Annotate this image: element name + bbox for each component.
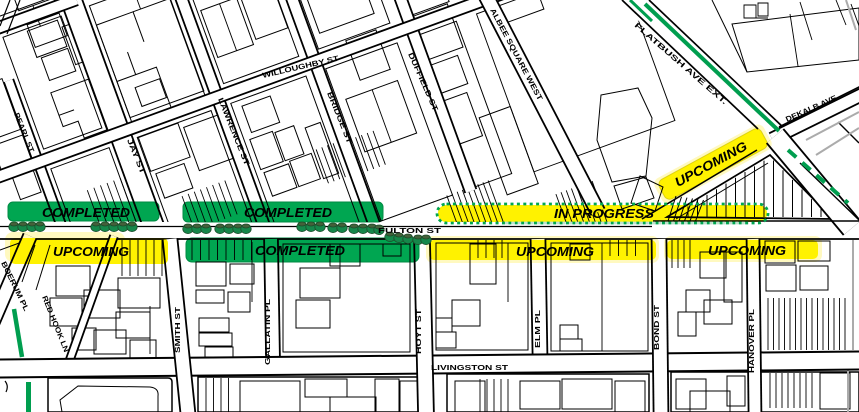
svg-text:COMPLETED: COMPLETED	[42, 205, 131, 220]
svg-text:BOND ST: BOND ST	[652, 304, 661, 350]
svg-text:UPCOMING: UPCOMING	[53, 244, 129, 259]
svg-text:COMPLETED: COMPLETED	[244, 205, 333, 220]
svg-text:ELM PL: ELM PL	[533, 309, 542, 348]
svg-text:HANOVER PL: HANOVER PL	[747, 308, 756, 373]
svg-text:FULTON ST: FULTON ST	[378, 226, 442, 235]
svg-text:UPCOMING: UPCOMING	[708, 243, 786, 258]
svg-text:LIVINGSTON ST: LIVINGSTON ST	[431, 363, 509, 372]
svg-text:UPCOMING: UPCOMING	[516, 244, 594, 259]
svg-text:COMPLETED: COMPLETED	[255, 243, 346, 258]
svg-text:SMITH ST: SMITH ST	[173, 306, 182, 353]
svg-text:HOYT ST: HOYT ST	[414, 308, 423, 354]
svg-text:IN PROGRESS: IN PROGRESS	[554, 206, 654, 221]
svg-text:GALLATIN PL: GALLATIN PL	[263, 298, 272, 365]
